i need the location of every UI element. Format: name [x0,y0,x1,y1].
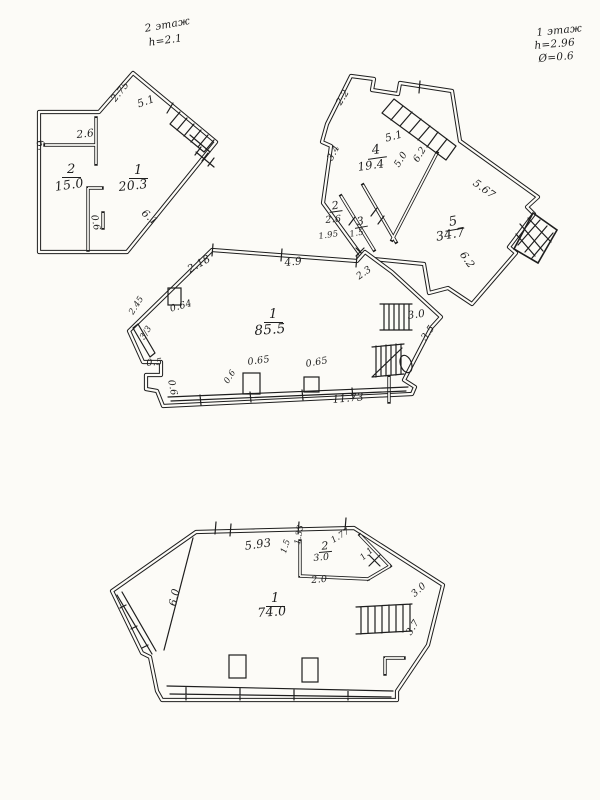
room-area: 3.0 [313,553,330,564]
room-number: 3 [353,215,368,229]
dim-label: 0.6 [89,214,102,232]
room-area: 20.3 [118,178,148,193]
room-area: 1.5 [349,228,365,239]
dim-label: 2.6 [76,128,95,140]
dim-label: 11.73 [332,392,364,405]
dim-label: 0.6 [166,379,179,397]
scanned-sketch-sheet: 2 этаж h=2.1 1 этаж h=2.96 Ø=0.6 2.75 5.… [0,0,600,800]
room-area: 2.6 [325,215,342,226]
dim-label: 0.5 [146,358,163,369]
dim-label: 2.0 [311,575,328,586]
room-area: 74.0 [257,605,287,619]
floorplan-canvas [0,0,600,800]
dim-label: 3.0 [407,309,426,322]
dim-label: 4.9 [284,256,303,268]
room-number: 2 [328,199,343,213]
room-area: 85.5 [254,323,286,339]
